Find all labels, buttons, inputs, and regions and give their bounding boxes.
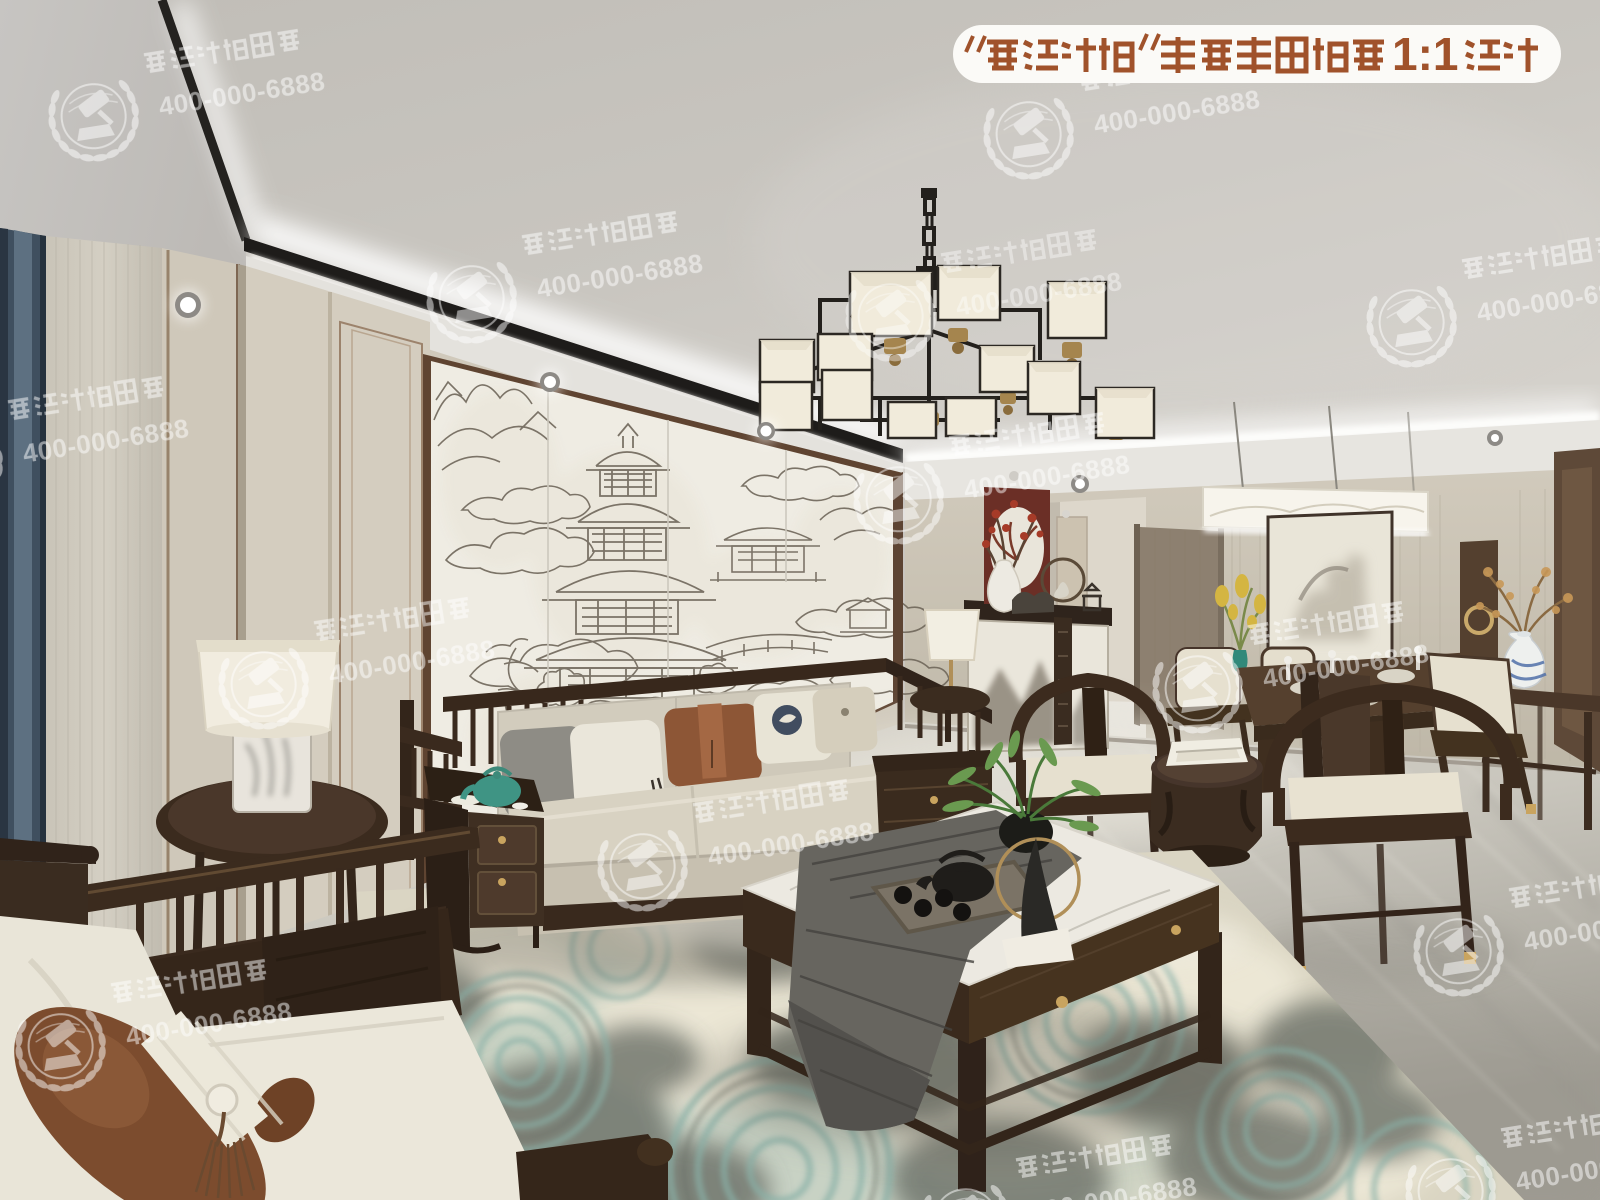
svg-text:1:1: 1:1 — [1392, 28, 1458, 80]
